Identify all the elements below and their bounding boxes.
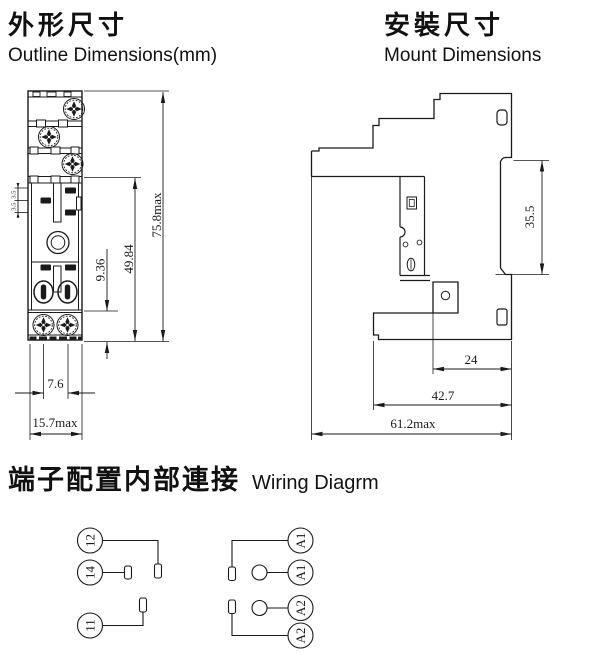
contact-pin (140, 598, 147, 612)
dim-base-height: 9.36 (93, 258, 108, 281)
drawing-canvas: 75.8max 49.84 9.36 3.5 3.5 7.6 15.7max (0, 0, 600, 655)
terminal-label-a2-bottom: A2 (293, 628, 308, 644)
dim-slot-pitch-top: 3.5 (11, 190, 18, 198)
bracket-slot (407, 197, 417, 209)
terminal-label-14: 14 (83, 566, 98, 580)
terminal-label-12: 12 (83, 534, 98, 547)
wiring-contact-group: 12 14 11 (78, 528, 162, 638)
bracket-hole (403, 242, 408, 247)
terminal-label-a1: A1 (293, 565, 308, 581)
dim-hole-offset: 24 (465, 352, 479, 367)
dim-overall-height: 75.8max (149, 192, 164, 238)
screw-terminal-5 (57, 315, 78, 336)
screw-terminal-1 (64, 99, 85, 120)
mount-slot-bottom (497, 309, 507, 325)
center-hole (47, 232, 69, 254)
coil-pin (229, 600, 236, 614)
coding-slot (65, 188, 76, 194)
bracket-hole (417, 240, 422, 245)
screw-terminal-4 (33, 315, 54, 336)
wiring-coil-group: A1 A1 A2 A2 (229, 528, 314, 648)
coding-slot (41, 198, 52, 204)
side-view-dimensions: 35.5 24 42.7 61.2max (312, 161, 550, 441)
coil-node (252, 565, 267, 580)
dim-mount-width: 61.2max (390, 416, 436, 431)
din-rail-bracket (400, 177, 430, 281)
coil-node (252, 601, 267, 616)
mount-slot-top (497, 110, 507, 125)
front-view-dimensions: 75.8max 49.84 9.36 3.5 3.5 7.6 15.7max (11, 91, 169, 440)
dim-depth: 42.7 (432, 388, 455, 403)
technical-drawing-page: 外形尺寸 Outline Dimensions(mm) 安裝尺寸 Mount D… (0, 0, 600, 655)
side-view-drawing (312, 94, 512, 340)
dim-screw-pitch: 7.6 (47, 376, 64, 391)
contact-pin (125, 566, 132, 579)
wiring-diagram: 12 14 11 A1 A1 A2 A2 (78, 528, 314, 648)
screw-terminal-2 (39, 127, 60, 148)
terminal-label-a2: A2 (293, 600, 308, 616)
mount-screw-hole (441, 291, 449, 299)
dim-body-height: 49.84 (121, 244, 136, 274)
coil-pin (229, 567, 236, 581)
screw-terminal-3 (62, 154, 83, 175)
terminal-label-a1-top: A1 (293, 533, 308, 549)
dim-overall-width: 15.7max (32, 415, 78, 430)
dim-slot-pitch-bottom: 3.5 (11, 202, 18, 210)
coding-slot (65, 210, 76, 216)
contact-pin (155, 564, 162, 578)
front-view-drawing (28, 91, 85, 340)
terminal-label-11: 11 (83, 619, 98, 632)
dim-rail-height: 35.5 (522, 206, 537, 229)
